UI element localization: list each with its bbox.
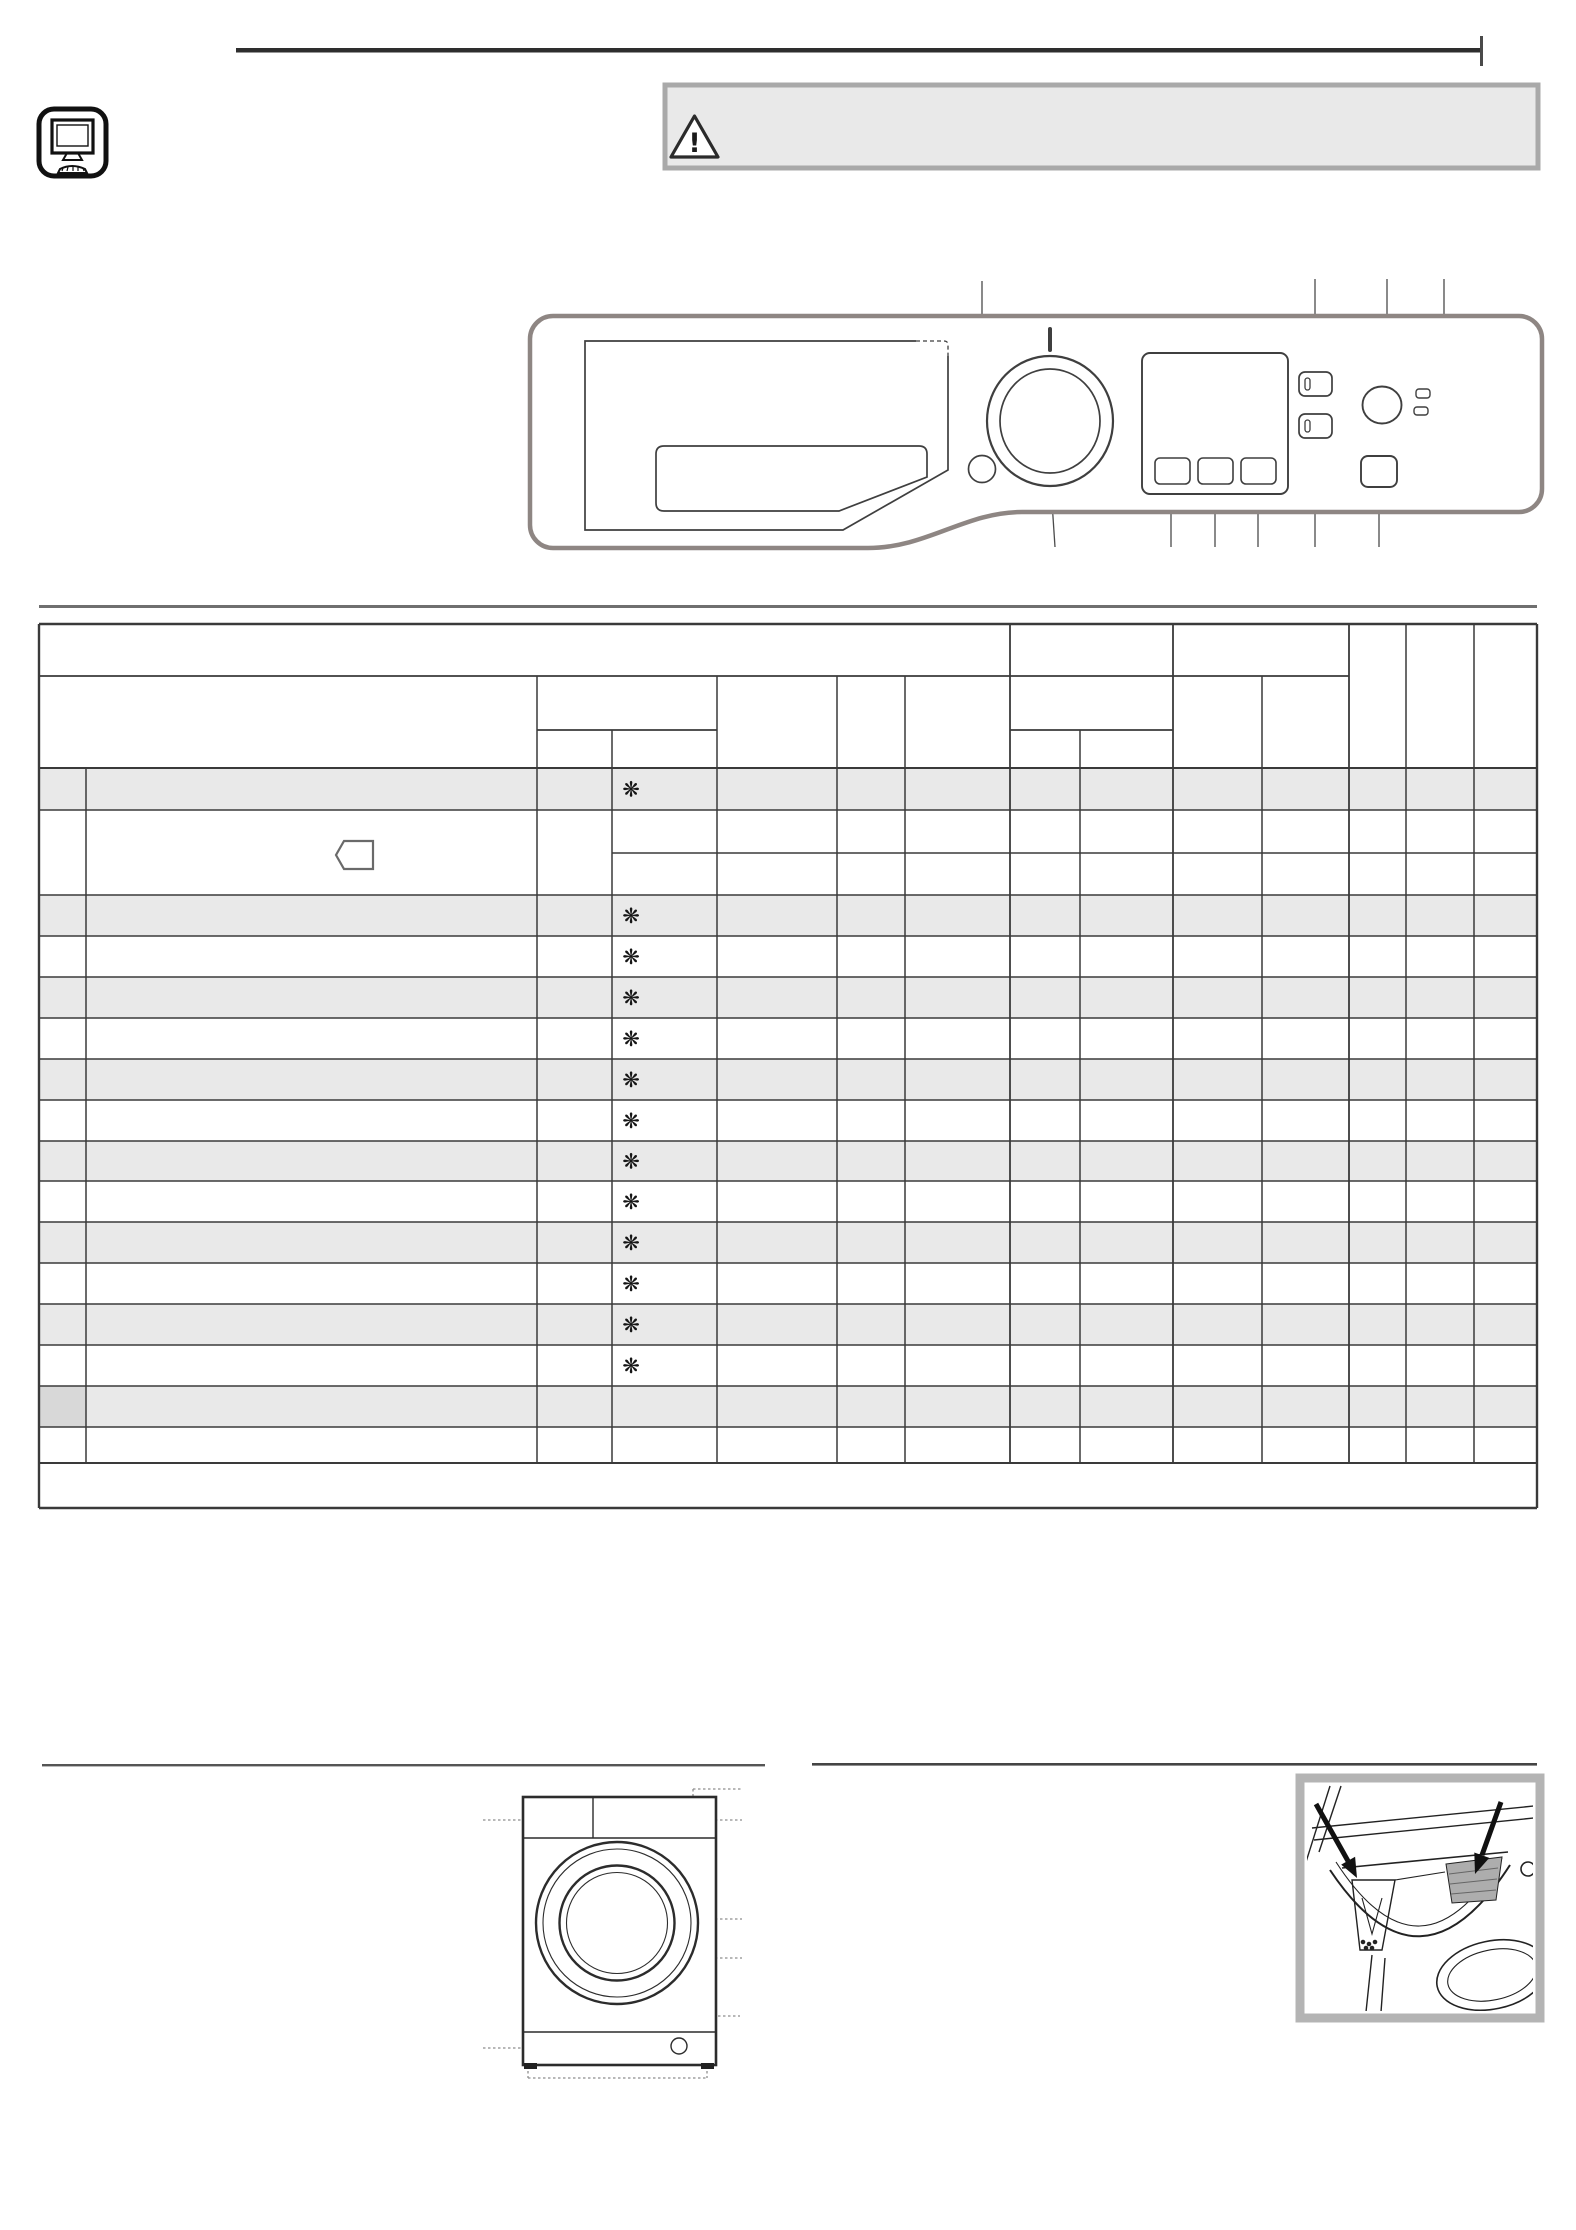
- table-row: [39, 1386, 1537, 1427]
- snowflake-icon: ❋: [622, 904, 640, 928]
- table-row: [39, 1222, 1537, 1263]
- computer-monitor-icon: [39, 109, 106, 176]
- snowflake-icon: ❋: [622, 1231, 640, 1255]
- program-table: ❋❋❋❋❋❋❋❋❋❋❋❋❋: [39, 624, 1537, 1508]
- table-row: [39, 895, 1537, 936]
- highlighted-program-cell: [39, 1386, 86, 1427]
- table-row: [39, 768, 1537, 810]
- control-panel-figure: [530, 279, 1542, 548]
- snowflake-icon: ❋: [622, 945, 640, 969]
- manual-page: !: [0, 0, 1576, 2230]
- title-rule: [236, 48, 1482, 53]
- snowflake-icon: ❋: [622, 1109, 640, 1133]
- detergent-drawer-photo: [1300, 1778, 1554, 2020]
- snowflake-icon: ❋: [622, 1190, 640, 1214]
- snowflake-icon: ❋: [622, 1354, 640, 1378]
- title-rule-tick: [1480, 36, 1483, 66]
- snowflake-icon: ❋: [622, 778, 640, 802]
- snowflake-icon: ❋: [622, 1027, 640, 1051]
- left-section-rule: [42, 1764, 765, 1766]
- snowflake-icon: ❋: [622, 1068, 640, 1092]
- table-row: [39, 1304, 1537, 1345]
- panel-outline: [530, 316, 1542, 548]
- table-row: [39, 1141, 1537, 1181]
- warning-exclamation: !: [688, 128, 700, 159]
- foot-left: [524, 2063, 537, 2069]
- table-shaded-rows: [39, 768, 1537, 1427]
- washer-front-view-diagram: [483, 1789, 742, 2078]
- header-rule: [236, 36, 1483, 66]
- snowflake-icon: ❋: [622, 1313, 640, 1337]
- snowflake-icon: ❋: [622, 986, 640, 1010]
- energy-label-tag-icon: [336, 841, 373, 869]
- warning-box: !: [665, 85, 1538, 168]
- foot-right: [701, 2063, 714, 2069]
- right-section-rule: [812, 1763, 1537, 1766]
- table-row: [39, 1059, 1537, 1100]
- snowflake-icon: ❋: [622, 1272, 640, 1296]
- table-section-rule: [39, 605, 1537, 608]
- table-row: [39, 977, 1537, 1018]
- snowflake-icon: ❋: [622, 1150, 640, 1174]
- snowflake-column: ❋❋❋❋❋❋❋❋❋❋❋❋❋: [622, 778, 640, 1379]
